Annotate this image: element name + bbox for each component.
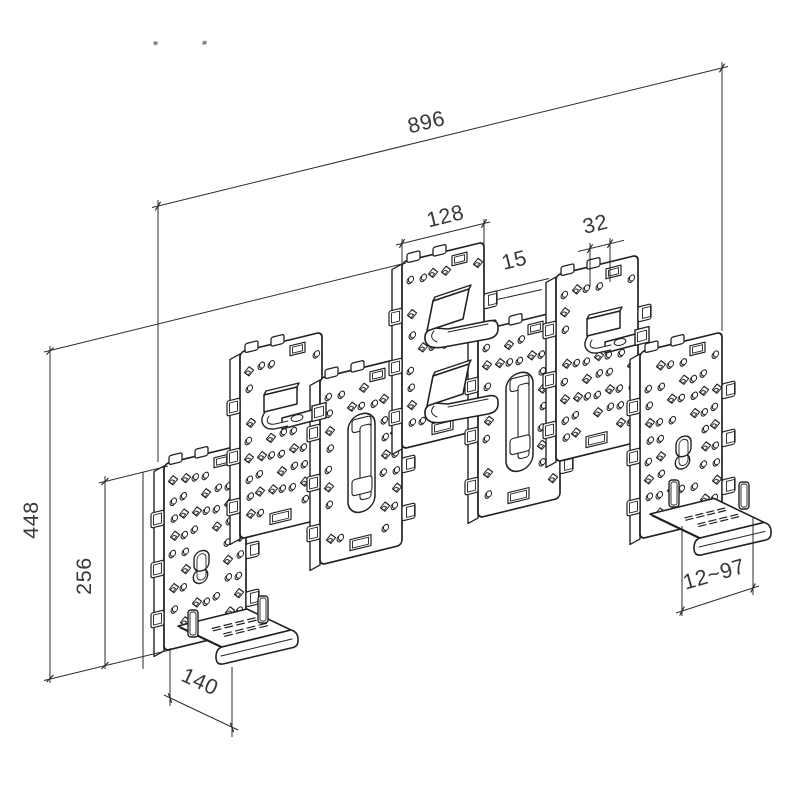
dimension-panel-thickness: 15	[494, 246, 549, 300]
dim-label-shelf-depth: 140	[178, 663, 222, 700]
dim-label-panel-thickness: 15	[499, 246, 529, 275]
dim-label-total-height: 448	[19, 501, 43, 539]
smudge-mark	[153, 41, 207, 46]
technical-drawing: 896 448 256 128	[0, 0, 800, 800]
dim-label-total-width: 896	[405, 106, 447, 138]
dim-label-shelf-adjust-range: 12~97	[680, 554, 748, 595]
dim-label-slot-pitch: 32	[580, 210, 610, 239]
dim-label-panel-height: 256	[72, 557, 96, 595]
dim-label-panel-width: 128	[424, 200, 466, 232]
